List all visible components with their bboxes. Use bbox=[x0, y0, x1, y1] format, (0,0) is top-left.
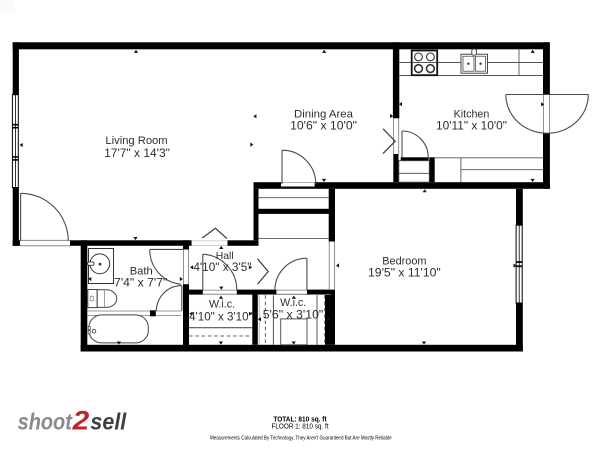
svg-text:7'4" x 7'7": 7'4" x 7'7" bbox=[114, 276, 167, 290]
svg-text:4'10" x 3'10": 4'10" x 3'10" bbox=[189, 310, 253, 323]
svg-text:2: 2 bbox=[71, 406, 89, 436]
svg-text:Measurements Calculated By Tec: Measurements Calculated By Technology. T… bbox=[210, 435, 392, 441]
svg-text:W.i.c.: W.i.c. bbox=[209, 299, 235, 311]
svg-text:19'5" x 11'10": 19'5" x 11'10" bbox=[368, 265, 441, 279]
svg-text:17'7" x 14'3": 17'7" x 14'3" bbox=[104, 146, 170, 160]
svg-text:10'11" x 10'0": 10'11" x 10'0" bbox=[436, 118, 507, 132]
svg-text:4'10" x 3'5": 4'10" x 3'5" bbox=[193, 260, 251, 274]
svg-text:5'6" x 3'10": 5'6" x 3'10" bbox=[263, 307, 324, 321]
svg-text:TOTAL: 810 sq. ft: TOTAL: 810 sq. ft bbox=[273, 416, 327, 423]
svg-text:10'6" x 10'0": 10'6" x 10'0" bbox=[290, 118, 357, 132]
svg-text:FLOOR 1: 810 sq. ft: FLOOR 1: 810 sq. ft bbox=[272, 424, 329, 431]
svg-text:sell: sell bbox=[90, 409, 126, 435]
svg-text:shoot: shoot bbox=[18, 409, 73, 435]
